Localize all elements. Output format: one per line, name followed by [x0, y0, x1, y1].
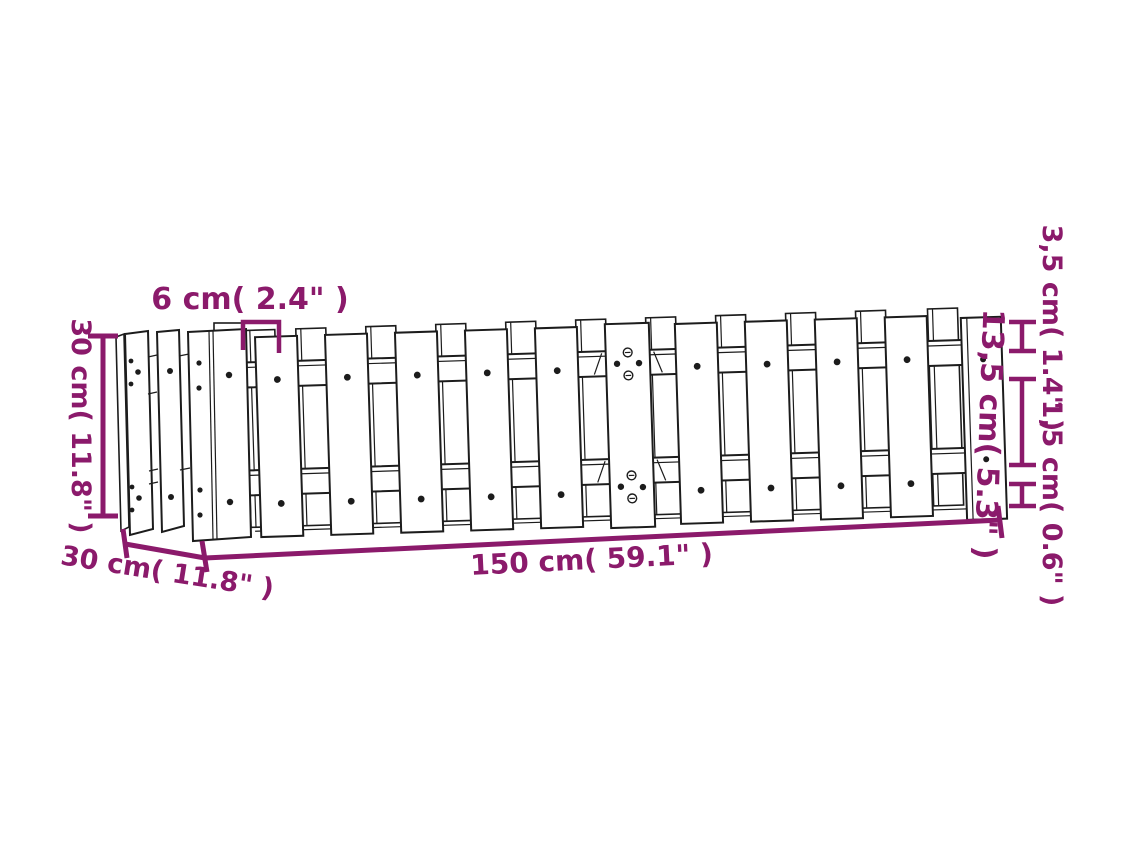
- dim-picket-gap-text: 6 cm( 2.4" ): [151, 282, 348, 317]
- fence-front-face: [237, 307, 1007, 543]
- dim-height: 30 cm( 11.8" ): [65, 318, 118, 533]
- front-picket: [535, 327, 583, 528]
- front-picket: [885, 316, 933, 517]
- dim-depth: 30 cm( 11.8" ): [59, 529, 276, 605]
- fence-left-side-face: [116, 323, 251, 541]
- side-picket: [157, 330, 184, 532]
- front-picket: [255, 336, 303, 537]
- product-dimension-diagram: 30 cm( 11.8" ) 6 cm( 2.4" ) 30 cm( 11.8"…: [0, 0, 1133, 849]
- front-picket: [675, 323, 723, 524]
- front-picket: [325, 334, 373, 535]
- back-picket: [927, 308, 963, 506]
- front-picket: [465, 329, 513, 530]
- dim-slat-bottom: 1,5 cm( 0.6" ): [1009, 400, 1067, 607]
- dim-picket-height: 13,5 cm( 5.3" ): [967, 309, 1036, 561]
- dim-slat-bottom-text: 1,5 cm( 0.6" ): [1036, 400, 1067, 607]
- side-picket: [125, 331, 153, 535]
- raised-bed-drawing: [116, 307, 1007, 543]
- front-picket: [395, 331, 443, 532]
- diagram-svg: 30 cm( 11.8" ) 6 cm( 2.4" ) 30 cm( 11.8"…: [0, 0, 1133, 849]
- dim-height-text: 30 cm( 11.8" ): [65, 318, 96, 533]
- junction-picket: [605, 323, 655, 528]
- corner-picket: [188, 329, 251, 541]
- front-picket: [815, 318, 863, 519]
- front-picket: [745, 320, 793, 521]
